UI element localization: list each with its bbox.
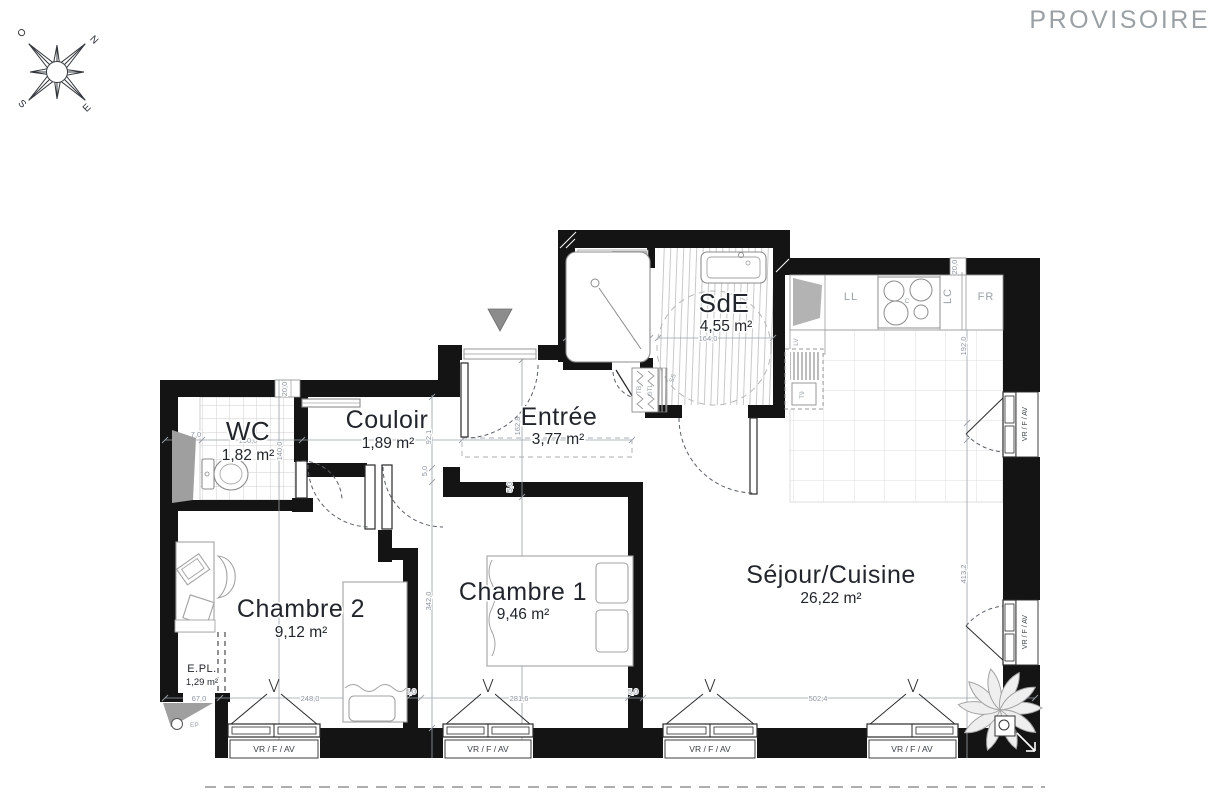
room-label-entree: Entrée: [521, 403, 598, 431]
shower-tray: [566, 252, 650, 362]
window-label-1: VR / F / AV: [253, 744, 295, 754]
room-label-chambre1: Chambre 1: [459, 578, 587, 606]
compass-letter-n: N: [87, 34, 100, 47]
t9-label: T9: [799, 391, 806, 399]
dim-413-2: 413,2: [959, 565, 968, 584]
window-sejour-1: VR / F / AV: [663, 679, 757, 758]
ep-label: EP: [190, 722, 199, 729]
cooktop-label: C: [905, 298, 910, 305]
dim-5-0-b: 5,0: [505, 482, 514, 492]
room-label-sejour: Séjour/Cuisine: [746, 561, 916, 589]
dim-5-0-a: 5,0: [420, 466, 429, 476]
desk-chambre2: [176, 542, 235, 632]
room-area-wc: 1,82 m²: [222, 447, 275, 464]
window-right-2: VR / F / AV: [966, 600, 1038, 665]
room-area-entree: 3,77 m²: [532, 431, 585, 448]
lc-label: LC: [942, 288, 954, 304]
window-label-5: VR / F / AV: [1022, 407, 1029, 441]
window-chambre1: VR / F / AV: [443, 679, 533, 758]
gtl-closet: TB GTL: [632, 368, 658, 412]
cooktop: C: [878, 277, 940, 328]
dishwasher-label: LV: [793, 338, 800, 346]
room-label-sde: SdE: [699, 288, 750, 318]
room-area-chambre2: 9,12 m²: [275, 624, 328, 641]
room-area-chambre1: 9,46 m²: [497, 606, 550, 623]
entry-marker-triangle: [488, 309, 512, 331]
compass-letter-s: S: [16, 98, 29, 111]
dim-20-0-wc: 20,0: [280, 382, 289, 397]
window-chambre2: VR / F / AV: [228, 679, 320, 758]
dim-20-0-kitchen: 20,0: [950, 260, 959, 275]
window-sejour-2: VR / F / AV: [867, 679, 958, 758]
room-area-couloir: 1,89 m²: [362, 435, 415, 452]
room-label-wc: WC: [226, 416, 270, 446]
room-label-couloir: Couloir: [346, 406, 429, 434]
gtl-label: GTL: [647, 383, 654, 396]
compass-letter-e: E: [81, 102, 94, 115]
radiator-t9: T9: [785, 349, 823, 409]
washbasin: [701, 252, 766, 283]
floor-plan-page: PROVISOIRE O N S E 20,: [0, 0, 1217, 800]
fridge-label: FR: [978, 291, 995, 303]
compass-letter-o: O: [16, 26, 29, 39]
window-label-6: VR / F / AV: [1022, 615, 1029, 649]
compass-rose: O N S E: [0, 15, 113, 128]
dim-502-4: 502,4: [809, 694, 828, 703]
provisoire-banner: PROVISOIRE: [1029, 6, 1210, 34]
room-label-epl: E.PL.: [187, 663, 216, 675]
dim-342-0: 342,0: [424, 592, 433, 611]
room-area-sde: 4,55 m²: [700, 318, 753, 335]
room-label-chambre2: Chambre 2: [237, 595, 365, 623]
dim-281-6: 281,6: [510, 694, 529, 703]
room-area-sejour: 26,22 m²: [800, 590, 861, 607]
dim-140-0: 140,0: [275, 442, 284, 461]
gtl-tb-label: TB: [636, 386, 643, 394]
window-label-3: VR / F / AV: [689, 744, 731, 754]
dim-164-0: 164,0: [699, 334, 718, 343]
washer-label: LL: [844, 291, 858, 303]
dim-67-0: 67,0: [192, 694, 207, 703]
dim-248-0: 248,0: [301, 694, 320, 703]
towel-rail: [659, 368, 667, 412]
dim-5-0-d: 5,0: [628, 687, 638, 696]
dim-192-0: 192,0: [959, 337, 968, 356]
floor-plan-drawing: PROVISOIRE O N S E 20,: [0, 0, 1217, 800]
room-area-epl: 1,29 m²: [186, 677, 218, 688]
window-label-4: VR / F / AV: [891, 744, 933, 754]
window-label-2: VR / F / AV: [467, 744, 509, 754]
